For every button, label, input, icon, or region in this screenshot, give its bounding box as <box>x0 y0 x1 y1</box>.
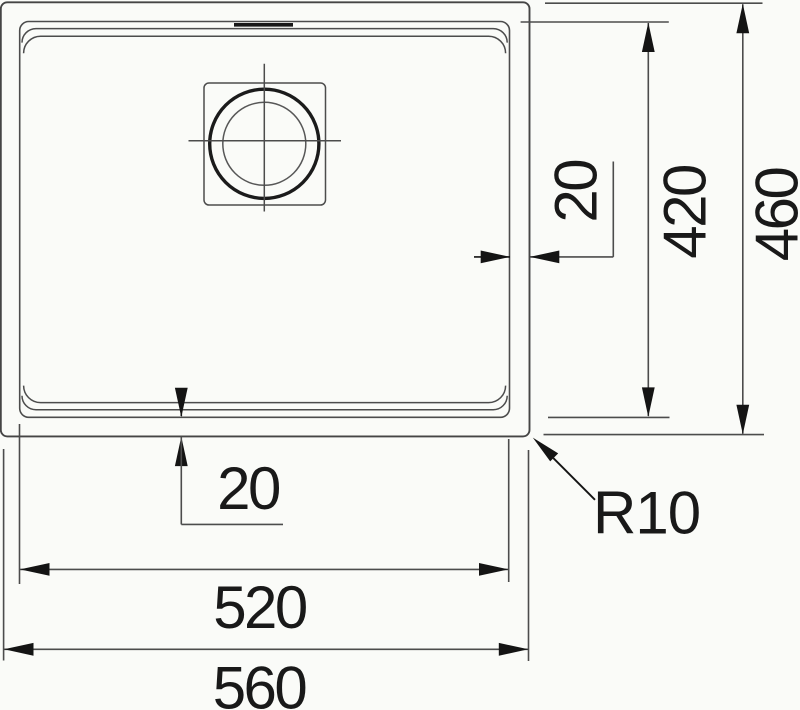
svg-text:420: 420 <box>651 165 718 259</box>
svg-text:R10: R10 <box>593 480 700 547</box>
svg-text:20: 20 <box>542 160 609 223</box>
svg-text:460: 460 <box>743 168 800 262</box>
svg-text:20: 20 <box>217 455 280 522</box>
svg-text:560: 560 <box>213 655 307 710</box>
svg-text:520: 520 <box>213 574 307 641</box>
